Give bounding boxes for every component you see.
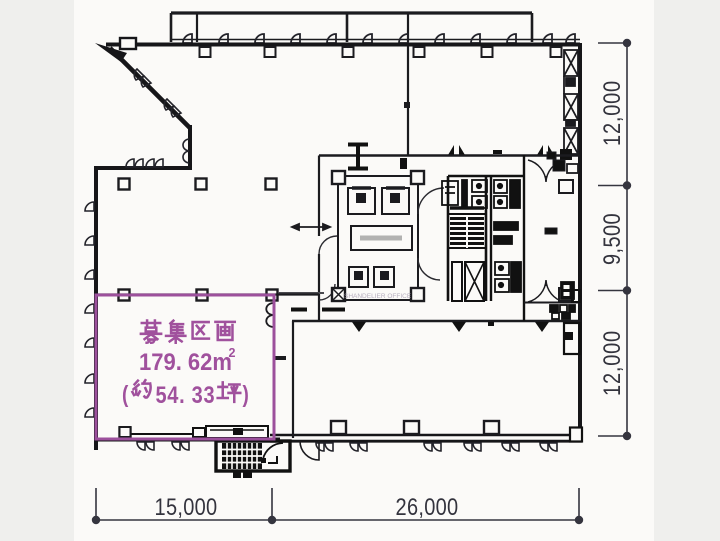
svg-text:15,000: 15,000 xyxy=(155,493,218,520)
svg-text:2: 2 xyxy=(229,346,236,360)
svg-text:26,000: 26,000 xyxy=(396,493,459,520)
svg-text:SHANDELIER OFFICE: SHANDELIER OFFICE xyxy=(344,293,412,300)
svg-text:): ) xyxy=(243,383,249,408)
svg-text:179. 62m: 179. 62m xyxy=(139,348,232,375)
svg-text:9,500: 9,500 xyxy=(598,213,625,265)
svg-text:(: ( xyxy=(122,383,128,408)
svg-text:54. 33: 54. 33 xyxy=(156,381,216,408)
svg-text:12,000: 12,000 xyxy=(598,80,625,146)
svg-text:12,000: 12,000 xyxy=(598,330,625,396)
